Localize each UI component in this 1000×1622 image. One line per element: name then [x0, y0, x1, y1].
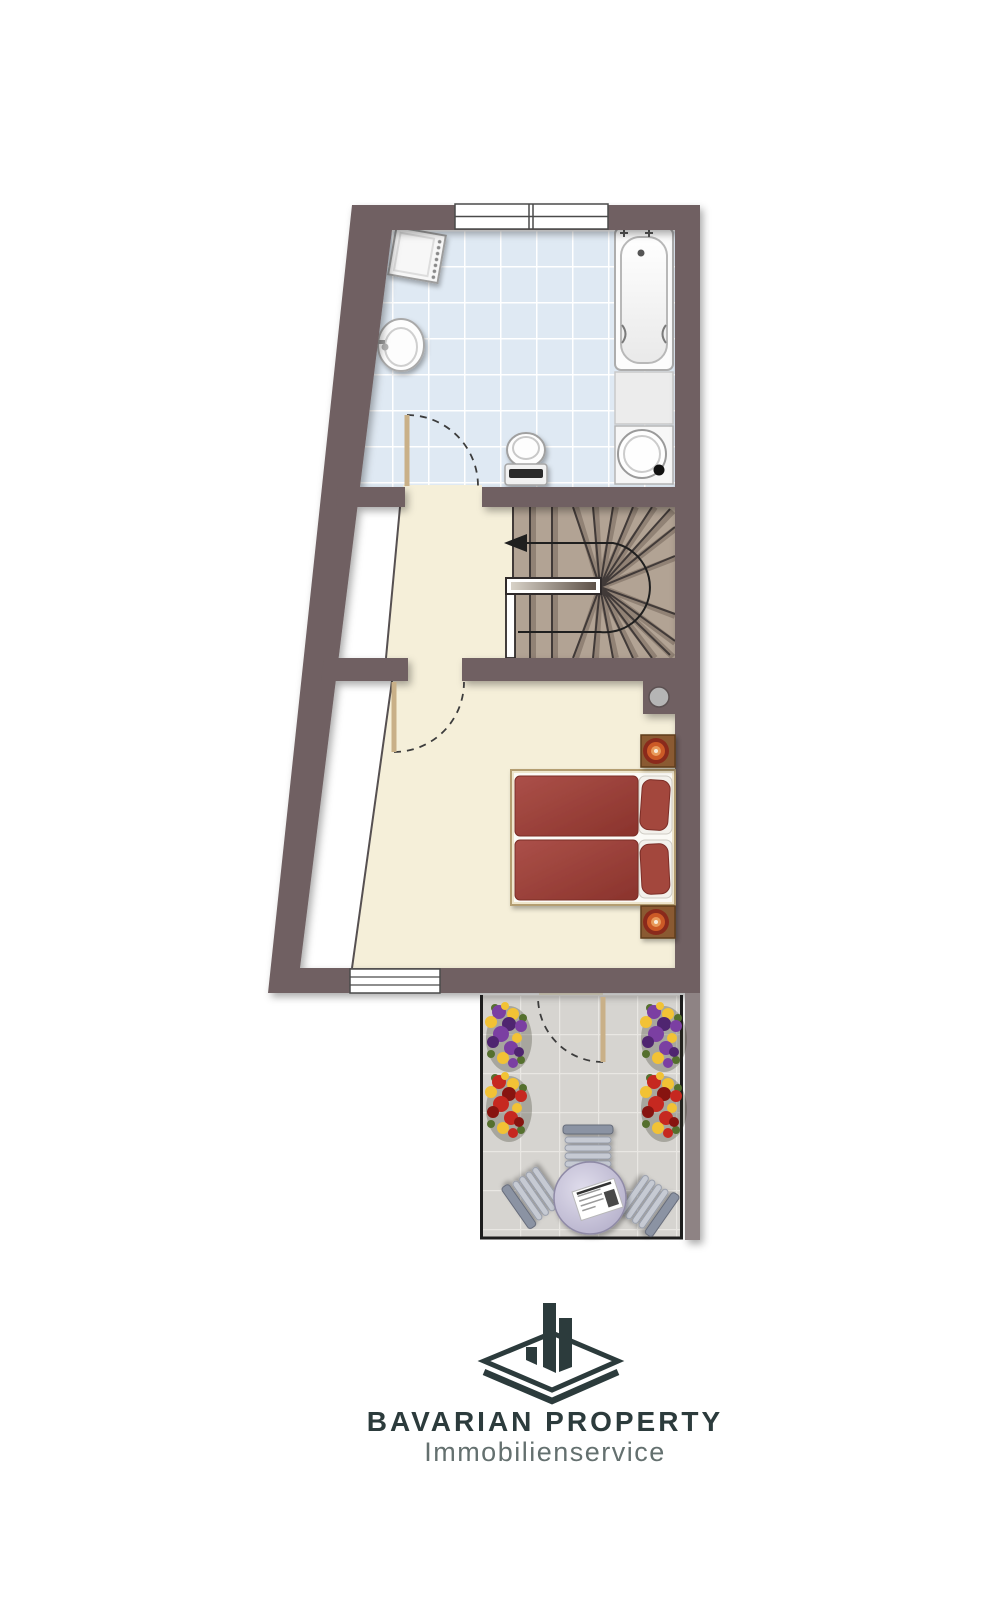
garden-table	[554, 1162, 626, 1234]
pillow-red-2	[640, 843, 671, 894]
bathroom-doorway-floor	[403, 485, 482, 509]
radiator	[388, 227, 446, 283]
garden-chair-1	[563, 1125, 613, 1167]
pillow-red-1	[639, 779, 670, 831]
neighbor-wall	[685, 993, 700, 1240]
tub-drain-icon	[638, 250, 645, 257]
brand-logo-icon	[484, 1303, 618, 1401]
brand-subtitle: Immobilienservice	[424, 1437, 666, 1467]
bathroom-window	[455, 204, 608, 229]
bathtub	[615, 228, 673, 370]
staircase	[504, 507, 675, 658]
toilet	[505, 433, 547, 485]
floor-plan: BAVARIAN PROPERTY Immobilienservice	[0, 0, 1000, 1622]
bedside-lamp-2	[643, 909, 669, 935]
duvet-2	[515, 840, 638, 900]
nightstand-2	[641, 906, 675, 938]
chimney-flue	[649, 687, 669, 707]
brand-title: BAVARIAN PROPERTY	[367, 1406, 723, 1437]
duvet-1	[515, 776, 638, 836]
washing-machine	[615, 426, 673, 484]
logo-towers-icon	[526, 1303, 572, 1373]
bedroom-window	[350, 969, 440, 993]
bedside-lamp-1	[643, 738, 669, 764]
floor-plan-page: BAVARIAN PROPERTY Immobilienservice	[0, 0, 1000, 1622]
nightstand-1	[641, 735, 675, 767]
double-bed	[511, 770, 675, 905]
bath-shelf	[615, 372, 673, 424]
